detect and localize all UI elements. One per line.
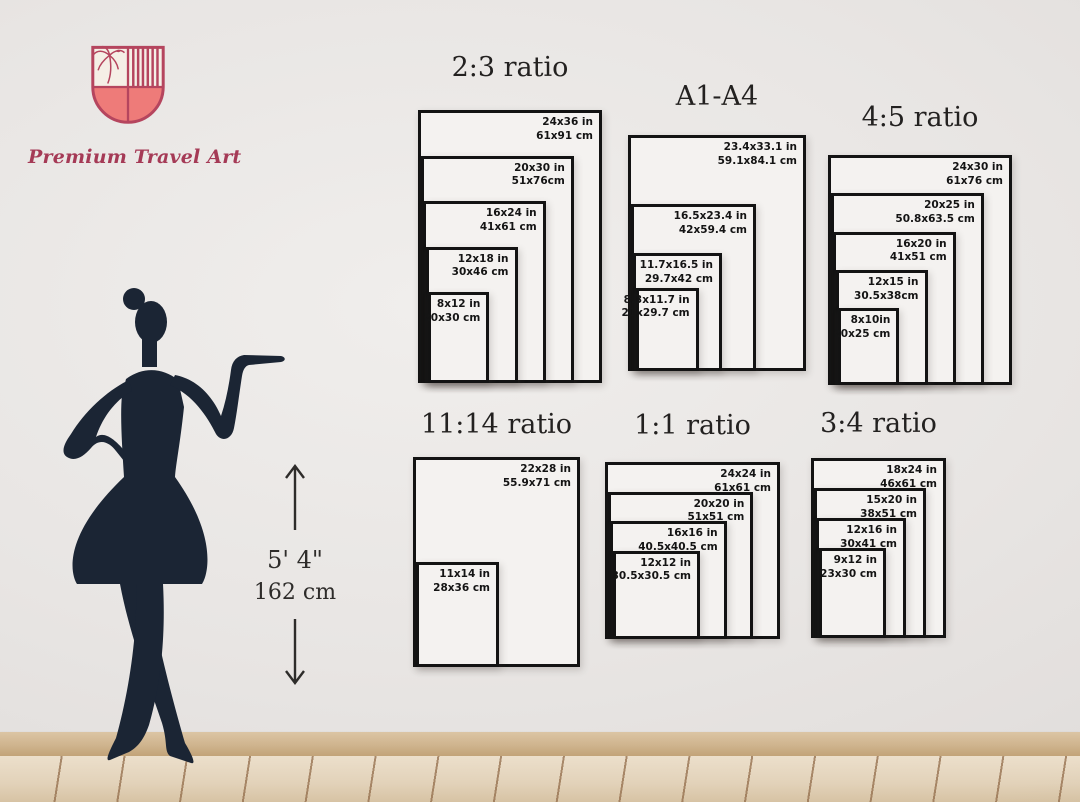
size-label: 22x28 in55.9x71 cm [503,463,571,490]
size-label: 20x25 in50.8x63.5 cm [895,199,974,226]
size-inches: 8.3x11.7 in [622,294,690,308]
size-rect: 8.3x11.7 in21x29.7 cm [636,288,699,371]
size-rects: 24x24 in61x61 cm20x20 in51x51 cm16x16 in… [605,462,780,639]
size-inches: 16x24 in [480,207,537,221]
size-inches: 12x12 in [612,557,691,571]
size-rects: 24x36 in61x91 cm20x30 in51x76cm16x24 in4… [418,110,602,383]
brand-name: Premium Travel Art [28,146,228,168]
size-cm: 51x76cm [512,175,565,189]
size-inches: 20x20 in [688,498,745,512]
size-inches: 12x16 in [840,524,897,538]
size-inches: 16.5x23.4 in [674,210,747,224]
size-chart-1-1-ratio: 1:1 ratio 24x24 in61x61 cm20x20 in51x51 … [605,462,780,639]
size-label: 16.5x23.4 in42x59.4 cm [674,210,747,237]
size-label: 8.3x11.7 in21x29.7 cm [622,294,690,321]
size-chart-4-5-ratio: 4:5 ratio 24x30 in61x76 cm20x25 in50.8x6… [828,155,1012,385]
shield-icon [84,40,172,134]
size-cm: 55.9x71 cm [503,477,571,491]
size-inches: 12x18 in [452,253,509,267]
size-inches: 9x12 in [820,554,877,568]
size-inches: 22x28 in [503,463,571,477]
height-indicator: 5' 4" 162 cm [252,460,338,712]
size-label: 12x12 in30.5x30.5 cm [612,557,691,584]
up-arrow-icon [282,460,308,532]
size-chart-a1-a4: A1-A4 23.4x33.1 in59.1x84.1 cm16.5x23.4 … [628,135,806,371]
size-cm: 28x36 cm [433,582,490,596]
size-cm: 30.5x38cm [854,290,918,304]
chart-title: 4:5 ratio [862,102,979,133]
size-inches: 8x12 in [424,298,481,312]
chart-title: 3:4 ratio [820,408,937,439]
size-cm: 61x91 cm [536,130,593,144]
size-inches: 23.4x33.1 in [718,141,797,155]
size-rects: 24x30 in61x76 cm20x25 in50.8x63.5 cm16x2… [828,155,1012,385]
size-label: 12x15 in30.5x38cm [854,276,918,303]
height-metric: 162 cm [254,580,336,605]
size-label: 11x14 in28x36 cm [433,568,490,595]
size-inches: 20x25 in [895,199,974,213]
size-rect: 12x12 in30.5x30.5 cm [613,551,701,640]
size-label: 12x18 in30x46 cm [452,253,509,280]
size-cm: 23x30 cm [820,568,877,582]
brand-logo: Premium Travel Art [28,40,228,168]
size-cm: 61x76 cm [946,175,1003,189]
size-cm: 59.1x84.1 cm [718,155,797,169]
size-inches: 11.7x16.5 in [640,259,713,273]
size-inches: 11x14 in [433,568,490,582]
size-inches: 18x24 in [880,464,937,478]
size-rect: 9x12 in23x30 cm [819,548,887,638]
size-chart-3-4-ratio: 3:4 ratio 18x24 in46x61 cm15x20 in38x51 … [811,458,946,638]
size-cm: 21x29.7 cm [622,307,690,321]
chart-title: 2:3 ratio [452,52,569,83]
size-cm: 41x51 cm [890,251,947,265]
size-label: 9x12 in23x30 cm [820,554,877,581]
size-rect: 8x12 in20x30 cm [428,292,489,383]
size-rects: 23.4x33.1 in59.1x84.1 cm16.5x23.4 in42x5… [628,135,806,371]
size-label: 8x10in20x25 cm [834,314,891,341]
size-label: 8x12 in20x30 cm [424,298,481,325]
size-cm: 29.7x42 cm [640,273,713,287]
size-cm: 50.8x63.5 cm [895,213,974,227]
size-inches: 24x30 in [946,161,1003,175]
size-cm: 30x46 cm [452,266,509,280]
room-scene: Premium Travel Art 5' 4" 162 cm 2:3 rati… [0,0,1080,802]
size-rects: 22x28 in55.9x71 cm11x14 in28x36 cm [413,457,580,667]
size-chart-2-3-ratio: 2:3 ratio 24x36 in61x91 cm20x30 in51x76c… [418,110,602,383]
size-inches: 24x36 in [536,116,593,130]
chart-title: A1-A4 [676,81,758,112]
size-label: 11.7x16.5 in29.7x42 cm [640,259,713,286]
size-cm: 42x59.4 cm [674,224,747,238]
size-label: 20x30 in51x76cm [512,162,565,189]
size-cm: 20x25 cm [834,328,891,342]
size-label: 24x36 in61x91 cm [536,116,593,143]
size-inches: 16x16 in [638,527,717,541]
height-imperial: 5' 4" [267,546,323,574]
size-inches: 8x10in [834,314,891,328]
size-rect: 8x10in20x25 cm [838,308,899,385]
size-cm: 20x30 cm [424,312,481,326]
size-inches: 15x20 in [860,494,917,508]
size-inches: 12x15 in [854,276,918,290]
size-label: 23.4x33.1 in59.1x84.1 cm [718,141,797,168]
size-rect: 11x14 in28x36 cm [416,562,500,667]
size-inches: 24x24 in [714,468,771,482]
size-cm: 41x61 cm [480,221,537,235]
size-inches: 20x30 in [512,162,565,176]
chart-title: 1:1 ratio [634,410,751,441]
size-label: 16x20 in41x51 cm [890,238,947,265]
size-chart-11-14-ratio: 11:14 ratio 22x28 in55.9x71 cm11x14 in28… [413,457,580,667]
size-label: 24x30 in61x76 cm [946,161,1003,188]
down-arrow-icon [282,617,308,689]
size-inches: 16x20 in [890,238,947,252]
size-label: 16x24 in41x61 cm [480,207,537,234]
chart-title: 11:14 ratio [421,409,572,440]
size-cm: 30.5x30.5 cm [612,570,691,584]
size-rects: 18x24 in46x61 cm15x20 in38x51 cm12x16 in… [811,458,946,638]
